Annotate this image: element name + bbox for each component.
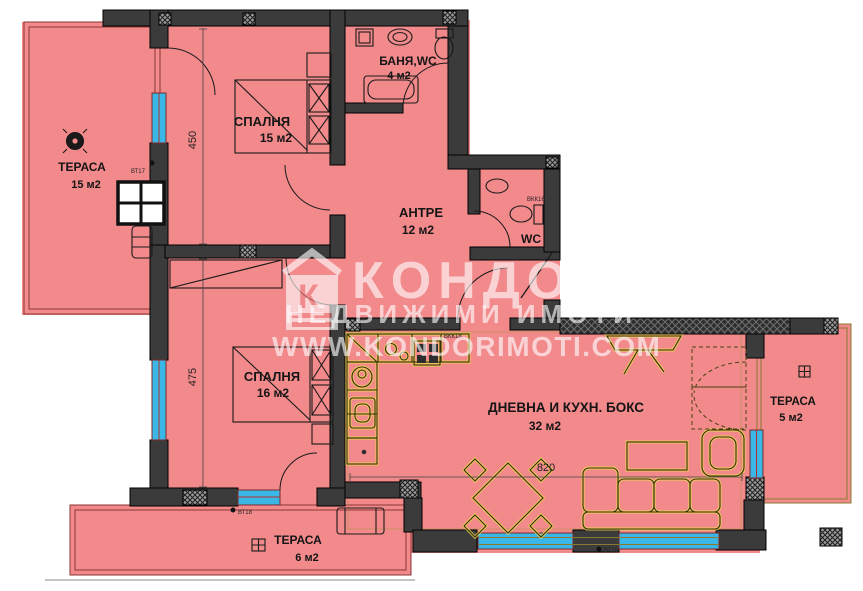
room-label-bedroom2: СПАЛНЯ [244, 369, 300, 384]
room-label-terrace-bottom: ТЕРАСА [274, 533, 322, 547]
room-label-bathroom: БАНЯ,WC [379, 54, 437, 68]
dimension-820: 820 [537, 462, 555, 474]
room-label-living: ДНЕВНА И КУХН. БОКС [488, 400, 644, 415]
watermark: К КОНДОР НЕДВИЖИМИ ИМОТИ WWW.KONDORIMOTI… [272, 252, 661, 362]
column-symbol [63, 129, 87, 153]
dimension-475: 475 [187, 368, 199, 386]
room-area-living: 32 м2 [529, 419, 562, 433]
duct-grid-symbol [118, 182, 164, 224]
room-area-bedroom2: 16 м2 [257, 386, 290, 400]
room-label-hallway: АНТРЕ [399, 205, 443, 220]
marker-bt18: ВТ18 [238, 510, 253, 516]
marker-bkk16: ВКК16 [527, 197, 545, 203]
room-area-terrace-bottom: 6 м2 [295, 552, 318, 564]
watermark-tagline: НЕДВИЖИМИ ИМОТИ [285, 299, 637, 329]
room-label-bedroom1: СПАЛНЯ [234, 114, 290, 129]
watermark-website: WWW.KONDORIMOTI.COM [272, 331, 661, 362]
room-label-terrace-left: ТЕРАСА [58, 160, 106, 174]
marker-bt17: ВТ17 [131, 169, 146, 175]
room-area-terrace-right: 5 м2 [779, 412, 802, 424]
dimension-450: 450 [187, 131, 199, 149]
floor-plan-canvas: 450 475 820 ВТ17 ВТ18 ВТ15 ВКК16 ВКК18 С… [0, 0, 863, 591]
marker-bt15: ВТ15 [604, 548, 619, 554]
room-area-terrace-left: 15 м2 [71, 179, 101, 191]
room-label-wc: WC [521, 232, 541, 246]
floor-plan: 450 475 820 ВТ17 ВТ18 ВТ15 ВКК16 ВКК18 С… [0, 0, 863, 591]
room-area-bedroom1: 15 м2 [260, 131, 293, 145]
room-area-hallway: 12 м2 [402, 223, 435, 237]
room-label-terrace-right: ТЕРАСА [770, 396, 816, 408]
room-area-bathroom: 4 м2 [387, 70, 410, 82]
